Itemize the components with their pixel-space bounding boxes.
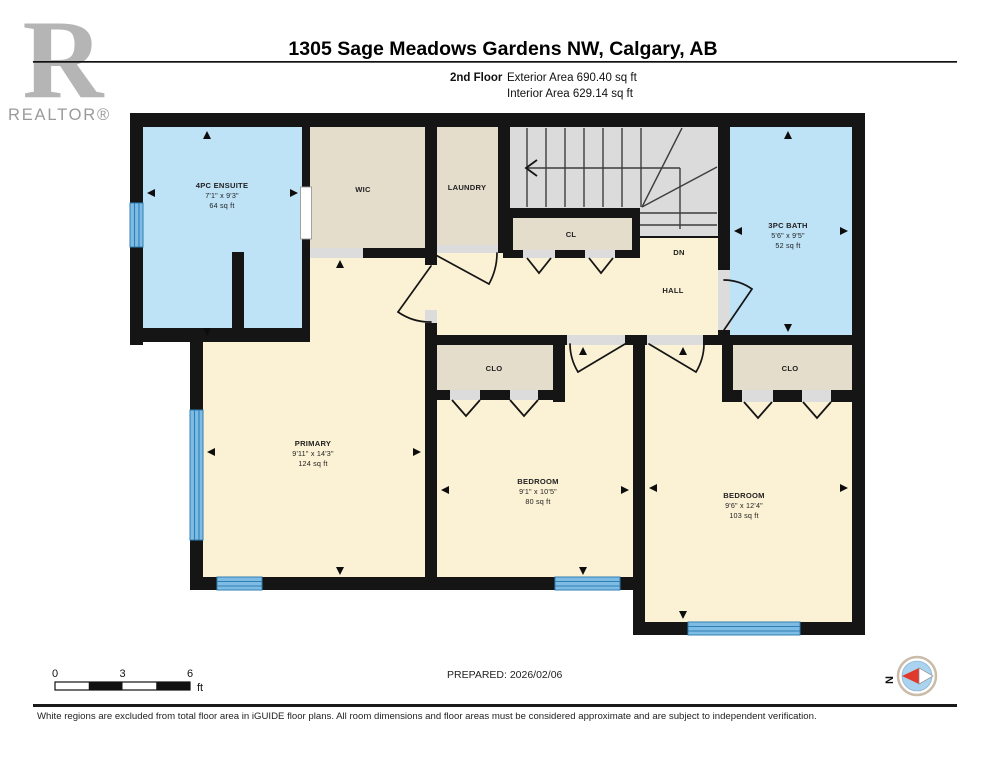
- label-laundry: LAUNDRY: [448, 183, 487, 192]
- label-wic: WIC: [355, 185, 371, 194]
- label-clo-right: CLO: [782, 364, 799, 373]
- scale-tick-0: 0: [52, 668, 58, 680]
- scale-unit: ft: [197, 682, 203, 694]
- floor-plan: 4PC ENSUITE 7'1" x 9'3" 64 sq ft WIC LAU…: [130, 113, 865, 635]
- room-fills: [143, 127, 852, 622]
- label-bath-area: 52 sq ft: [775, 241, 800, 250]
- label-bath-name: 3PC BATH: [768, 221, 807, 230]
- label-ensuite-area: 64 sq ft: [209, 201, 234, 210]
- label-clo-mid: CLO: [486, 364, 503, 373]
- label-bedroom-right-name: BEDROOM: [723, 491, 764, 500]
- label-primary-name: PRIMARY: [295, 439, 332, 448]
- label-ensuite-dims: 7'1" x 9'3": [205, 191, 239, 200]
- title-divider: [33, 61, 957, 63]
- compass-north-label: N: [884, 676, 896, 684]
- window-ensuite-left: [130, 203, 143, 247]
- label-bedroom-right-dims: 9'6" x 12'4": [725, 501, 763, 510]
- scale-tick-3: 3: [119, 668, 125, 680]
- label-primary-dims: 9'11" x 14'3": [292, 449, 334, 458]
- window-primary-bottom: [217, 577, 262, 590]
- window-bedroom-right-bottom: [688, 622, 800, 635]
- room-ensuite: [143, 127, 302, 328]
- label-dn: DN: [673, 248, 684, 257]
- exterior-area: Exterior Area 690.40 sq ft: [507, 72, 638, 84]
- label-bedroom-mid-dims: 9'1" x 10'5": [519, 487, 557, 496]
- realtor-logo-text: REALTOR®: [8, 106, 111, 124]
- footer-divider: [33, 704, 957, 707]
- label-cl: CL: [566, 230, 577, 239]
- floor-summary: 2nd Floor Exterior Area 690.40 sq ft Int…: [450, 72, 638, 100]
- scale-tick-6: 6: [187, 668, 193, 680]
- label-bedroom-mid-area: 80 sq ft: [525, 497, 550, 506]
- page-title: 1305 Sage Meadows Gardens NW, Calgary, A…: [288, 38, 717, 60]
- floorplan-page: R REALTOR® 1305 Sage Meadows Gardens NW,…: [0, 0, 993, 768]
- compass: N: [884, 657, 936, 695]
- label-ensuite-name: 4PC ENSUITE: [196, 181, 249, 190]
- disclaimer-text: White regions are excluded from total fl…: [37, 711, 817, 722]
- label-bedroom-right-area: 103 sq ft: [729, 511, 758, 520]
- room-stairs-landing: [640, 127, 718, 238]
- window-bedroom-mid-bottom: [555, 577, 620, 590]
- label-bath-dims: 5'6" x 9'5": [771, 231, 805, 240]
- prepared-date: PREPARED: 2026/02/06: [447, 669, 563, 681]
- interior-area: Interior Area 629.14 sq ft: [507, 88, 634, 100]
- floor-label: 2nd Floor: [450, 72, 503, 84]
- scale-bar: 0 3 6 ft: [52, 668, 203, 694]
- room-primary-extension: [310, 258, 425, 342]
- label-hall: HALL: [662, 286, 683, 295]
- pocket-door: [301, 187, 312, 239]
- label-bedroom-mid-name: BEDROOM: [517, 477, 558, 486]
- window-primary-left: [190, 410, 203, 540]
- label-primary-area: 124 sq ft: [298, 459, 327, 468]
